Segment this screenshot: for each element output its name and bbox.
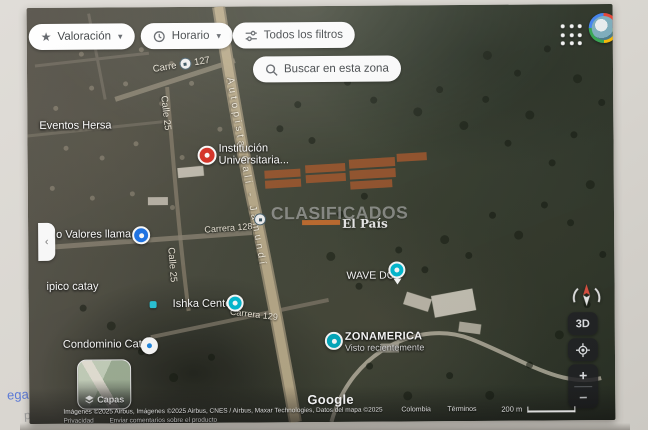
- zoom-in-button[interactable]: +: [579, 365, 587, 386]
- filter-chip-valoracion[interactable]: ★ Valoración ▾: [29, 23, 135, 50]
- search-icon: [265, 63, 278, 76]
- poi-label-wave-dc[interactable]: WAVE DC: [346, 269, 394, 281]
- poi-label-ipico-catay[interactable]: ipico catay: [46, 281, 98, 293]
- poi-marker-ishka-center[interactable]: [227, 295, 244, 312]
- map-canvas[interactable]: CLASIFICADOS El País Carre 127 Calle 25 …: [27, 4, 616, 424]
- footer-terms-link[interactable]: Términos: [447, 406, 476, 413]
- scale-bar: [527, 406, 575, 412]
- transit-stop-icon[interactable]: [254, 213, 266, 225]
- 3d-view-button[interactable]: 3D: [568, 312, 598, 335]
- scale-text: 200 m: [501, 405, 522, 414]
- star-icon: ★: [41, 30, 52, 44]
- photo-of-screen: egar pa: [0, 0, 648, 430]
- poi-marker-valores-llama[interactable]: [132, 226, 150, 244]
- my-location-icon: [576, 343, 590, 357]
- watermark-elpais: El País: [342, 217, 388, 231]
- poi-dot-teal[interactable]: [150, 301, 157, 308]
- poi-marker-institucion[interactable]: [198, 146, 217, 165]
- map-texture-urban: [27, 8, 32, 13]
- google-logo: Google: [307, 392, 354, 407]
- poi-marker-zonamerica[interactable]: [325, 332, 343, 350]
- search-this-area-button[interactable]: Buscar en esta zona: [253, 55, 401, 82]
- transit-stop-icon[interactable]: [178, 57, 192, 71]
- poi-label-institucion[interactable]: Institución Universitaria...: [218, 142, 288, 166]
- collapse-chevron-icon: ‹: [45, 236, 49, 248]
- google-apps-grid-icon[interactable]: [561, 24, 582, 45]
- chevron-down-icon: ▾: [216, 30, 221, 41]
- poi-label-condominio-catay[interactable]: Condominio Catay: [63, 338, 154, 351]
- my-location-button[interactable]: [568, 338, 598, 361]
- poi-label-zonamerica[interactable]: ZONAMERICA: [345, 330, 423, 343]
- pin-tail: [393, 278, 401, 284]
- filter-chip-horario[interactable]: Horario ▾: [141, 23, 233, 50]
- poi-pin-wave-dc[interactable]: [388, 261, 405, 284]
- poi-marker-condominio-catay[interactable]: [141, 337, 158, 354]
- clock-icon: [153, 30, 166, 43]
- watermark-underline: [302, 220, 340, 225]
- chevron-down-icon: ▾: [118, 31, 123, 42]
- filter-chip-todos-los-filtros[interactable]: Todos los filtros: [233, 22, 355, 49]
- side-panel-collapse-tab[interactable]: ‹: [38, 223, 55, 261]
- poi-label-eventos-hersa[interactable]: Eventos Hersa: [39, 119, 111, 132]
- photo-shadow: [20, 423, 630, 430]
- avatar[interactable]: [589, 13, 616, 43]
- avatar-photo: [592, 16, 616, 40]
- poi-label-valores-llama[interactable]: o Valores llama: [56, 228, 131, 241]
- compass-control[interactable]: [568, 281, 604, 309]
- poi-sublabel-zonamerica: Visto recientemente: [345, 342, 424, 353]
- footer-region: Colombia: [401, 406, 431, 413]
- sliders-icon: [245, 29, 258, 42]
- pin-head: [388, 261, 405, 278]
